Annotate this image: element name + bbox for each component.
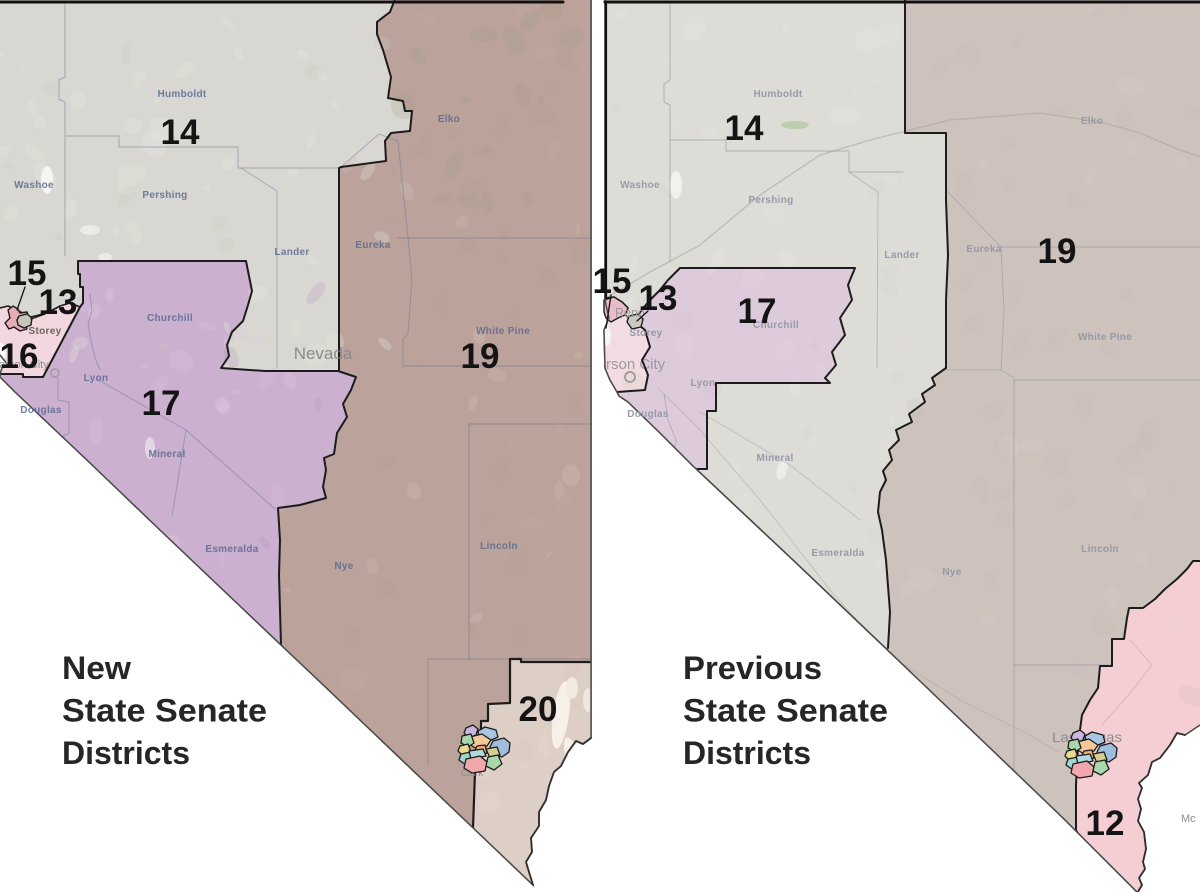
svg-text:Douglas: Douglas [20, 405, 62, 416]
svg-text:Districts: Districts [683, 735, 811, 771]
svg-text:White Pine: White Pine [1078, 332, 1132, 343]
svg-text:Lyon: Lyon [691, 378, 716, 389]
svg-text:Churchill: Churchill [147, 313, 193, 324]
svg-text:Lincoln: Lincoln [1081, 544, 1119, 555]
svg-text:13: 13 [39, 283, 78, 322]
svg-text:Districts: Districts [62, 735, 190, 771]
svg-text:Elko: Elko [1081, 116, 1103, 127]
svg-text:Lyon: Lyon [84, 373, 109, 384]
svg-text:19: 19 [461, 337, 500, 376]
svg-text:Mineral: Mineral [756, 453, 793, 464]
svg-text:Eureka: Eureka [355, 240, 390, 251]
svg-text:White Pine: White Pine [476, 326, 530, 337]
svg-text:Storey: Storey [630, 328, 663, 339]
svg-text:Lincoln: Lincoln [480, 541, 518, 552]
svg-text:State Senate: State Senate [62, 693, 267, 729]
svg-text:Douglas: Douglas [627, 409, 669, 420]
svg-text:12: 12 [1086, 804, 1125, 843]
svg-text:15: 15 [593, 262, 632, 301]
svg-text:13: 13 [639, 279, 678, 318]
svg-text:17: 17 [738, 292, 777, 331]
svg-text:Mc: Mc [1181, 813, 1196, 825]
svg-text:20: 20 [519, 690, 558, 729]
svg-text:14: 14 [725, 109, 764, 148]
svg-text:Elko: Elko [438, 114, 460, 125]
svg-text:17: 17 [142, 384, 181, 423]
svg-text:Storey: Storey [29, 326, 62, 337]
svg-text:Eureka: Eureka [966, 244, 1001, 255]
svg-text:Humboldt: Humboldt [753, 89, 802, 100]
svg-text:16: 16 [0, 337, 38, 376]
svg-text:Mineral: Mineral [148, 449, 185, 460]
svg-text:19: 19 [1038, 232, 1077, 271]
svg-text:Washoe: Washoe [620, 180, 660, 191]
svg-text:Humboldt: Humboldt [157, 89, 206, 100]
svg-text:Lander: Lander [884, 250, 919, 261]
svg-text:14: 14 [161, 113, 200, 152]
svg-text:Nevada: Nevada [294, 344, 353, 363]
svg-text:Esmeralda: Esmeralda [205, 544, 258, 555]
svg-text:State Senate: State Senate [683, 693, 888, 729]
svg-text:Nye: Nye [334, 561, 353, 572]
svg-text:Nye: Nye [942, 567, 961, 578]
svg-text:Lander: Lander [274, 247, 309, 258]
svg-text:Esmeralda: Esmeralda [811, 548, 864, 559]
svg-text:Previous: Previous [683, 650, 822, 686]
svg-text:New: New [62, 650, 131, 686]
svg-text:Pershing: Pershing [748, 195, 793, 206]
svg-text:Pershing: Pershing [142, 190, 187, 201]
svg-text:Washoe: Washoe [14, 180, 54, 191]
